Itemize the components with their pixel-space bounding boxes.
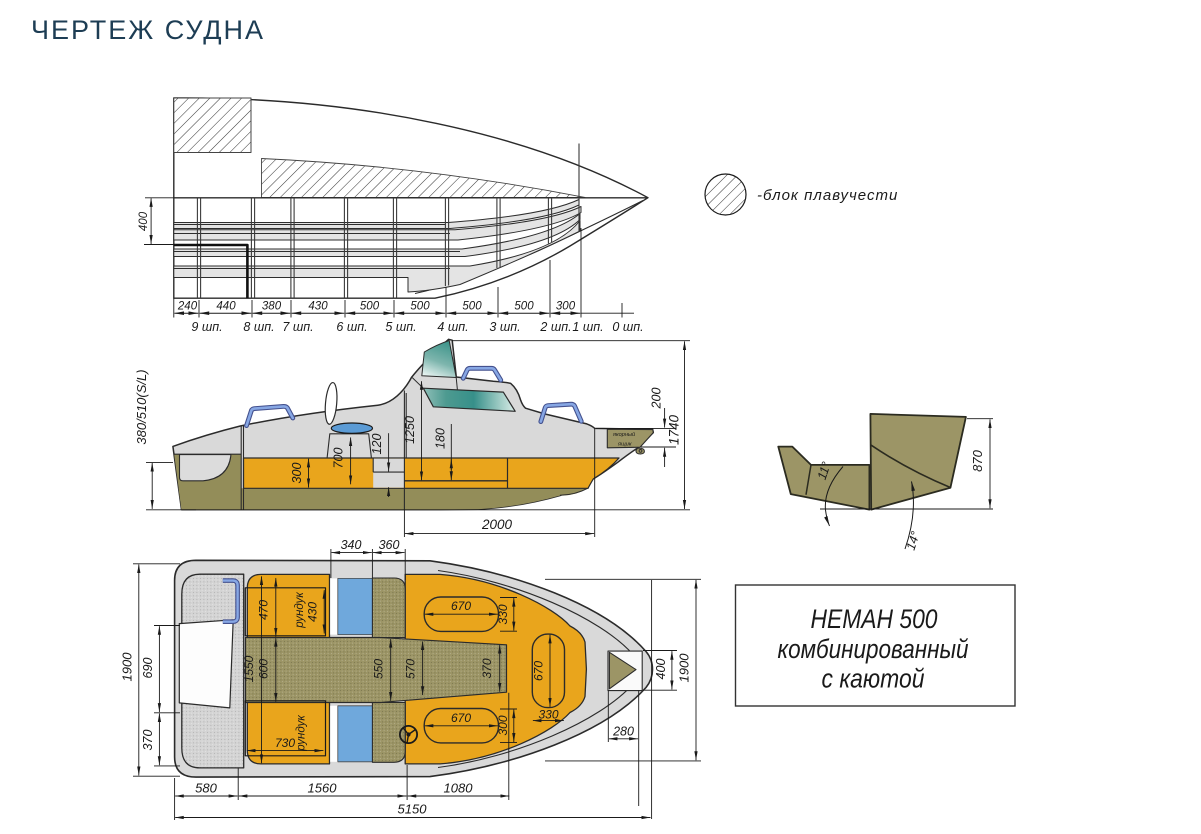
svg-text:600: 600 (257, 659, 271, 679)
svg-text:870: 870 (970, 449, 985, 471)
svg-text:ящик: ящик (617, 442, 632, 448)
svg-text:370: 370 (141, 730, 155, 751)
svg-text:комбинированный: комбинированный (778, 634, 969, 664)
svg-text:330: 330 (496, 604, 510, 624)
svg-text:300: 300 (556, 301, 576, 313)
svg-text:300: 300 (496, 715, 510, 735)
svg-text:0 шп.: 0 шп. (612, 320, 643, 334)
svg-text:с каютой: с каютой (822, 664, 925, 694)
svg-text:рундук: рундук (296, 715, 308, 752)
svg-text:240: 240 (177, 301, 198, 313)
svg-text:180: 180 (434, 428, 448, 449)
svg-text:360: 360 (379, 538, 400, 552)
svg-text:550: 550 (372, 659, 386, 679)
svg-text:6 шп.: 6 шп. (336, 320, 367, 334)
svg-text:470: 470 (257, 600, 271, 620)
svg-text:4 шп.: 4 шп. (437, 320, 468, 334)
svg-text:380: 380 (262, 301, 282, 313)
svg-text:-блок плавучести: -блок плавучести (757, 187, 898, 204)
svg-text:500: 500 (462, 301, 482, 313)
svg-text:570: 570 (404, 659, 418, 679)
svg-text:200: 200 (650, 388, 664, 410)
svg-text:якорный: якорный (612, 431, 635, 438)
svg-text:280: 280 (612, 724, 634, 738)
svg-text:500: 500 (514, 301, 534, 313)
svg-text:440: 440 (216, 301, 236, 313)
svg-text:670: 670 (532, 661, 546, 681)
svg-text:3 шп.: 3 шп. (489, 320, 520, 334)
svg-text:380/510(S/L): 380/510(S/L) (134, 369, 149, 444)
svg-text:370: 370 (480, 658, 494, 678)
svg-text:120: 120 (370, 434, 384, 455)
svg-text:670: 670 (451, 711, 471, 725)
svg-text:1560: 1560 (308, 781, 338, 796)
svg-text:700: 700 (332, 448, 346, 469)
svg-text:9 шп.: 9 шп. (191, 320, 222, 334)
svg-text:1080: 1080 (444, 781, 474, 796)
svg-text:5150: 5150 (398, 802, 428, 817)
svg-text:430: 430 (308, 301, 328, 313)
svg-text:7 шп.: 7 шп. (282, 320, 313, 334)
svg-text:ЧЕРТЕЖ СУДНА: ЧЕРТЕЖ СУДНА (31, 15, 265, 45)
svg-text:14°: 14° (904, 530, 923, 552)
svg-text:430: 430 (306, 602, 320, 622)
svg-text:400: 400 (138, 211, 150, 231)
svg-text:730: 730 (275, 736, 295, 750)
svg-text:рундук: рундук (294, 592, 306, 629)
svg-text:1900: 1900 (120, 652, 135, 682)
svg-text:1740: 1740 (667, 414, 682, 445)
svg-text:400: 400 (654, 659, 668, 680)
svg-text:1250: 1250 (403, 416, 417, 444)
svg-text:500: 500 (360, 301, 380, 313)
svg-text:НЕМАН 500: НЕМАН 500 (811, 604, 938, 634)
svg-text:690: 690 (141, 658, 155, 679)
svg-text:1550: 1550 (242, 655, 256, 682)
svg-text:330: 330 (538, 707, 558, 721)
svg-text:500: 500 (410, 301, 430, 313)
svg-text:580: 580 (195, 781, 217, 796)
svg-text:670: 670 (451, 599, 471, 613)
svg-text:2 шп.: 2 шп. (539, 320, 571, 334)
svg-text:1 шп.: 1 шп. (572, 320, 603, 334)
svg-text:5 шп.: 5 шп. (385, 320, 416, 334)
svg-text:340: 340 (341, 538, 362, 552)
svg-text:2000: 2000 (481, 517, 513, 532)
svg-text:300: 300 (290, 463, 304, 484)
svg-text:1900: 1900 (677, 653, 692, 683)
svg-text:8 шп.: 8 шп. (243, 320, 274, 334)
